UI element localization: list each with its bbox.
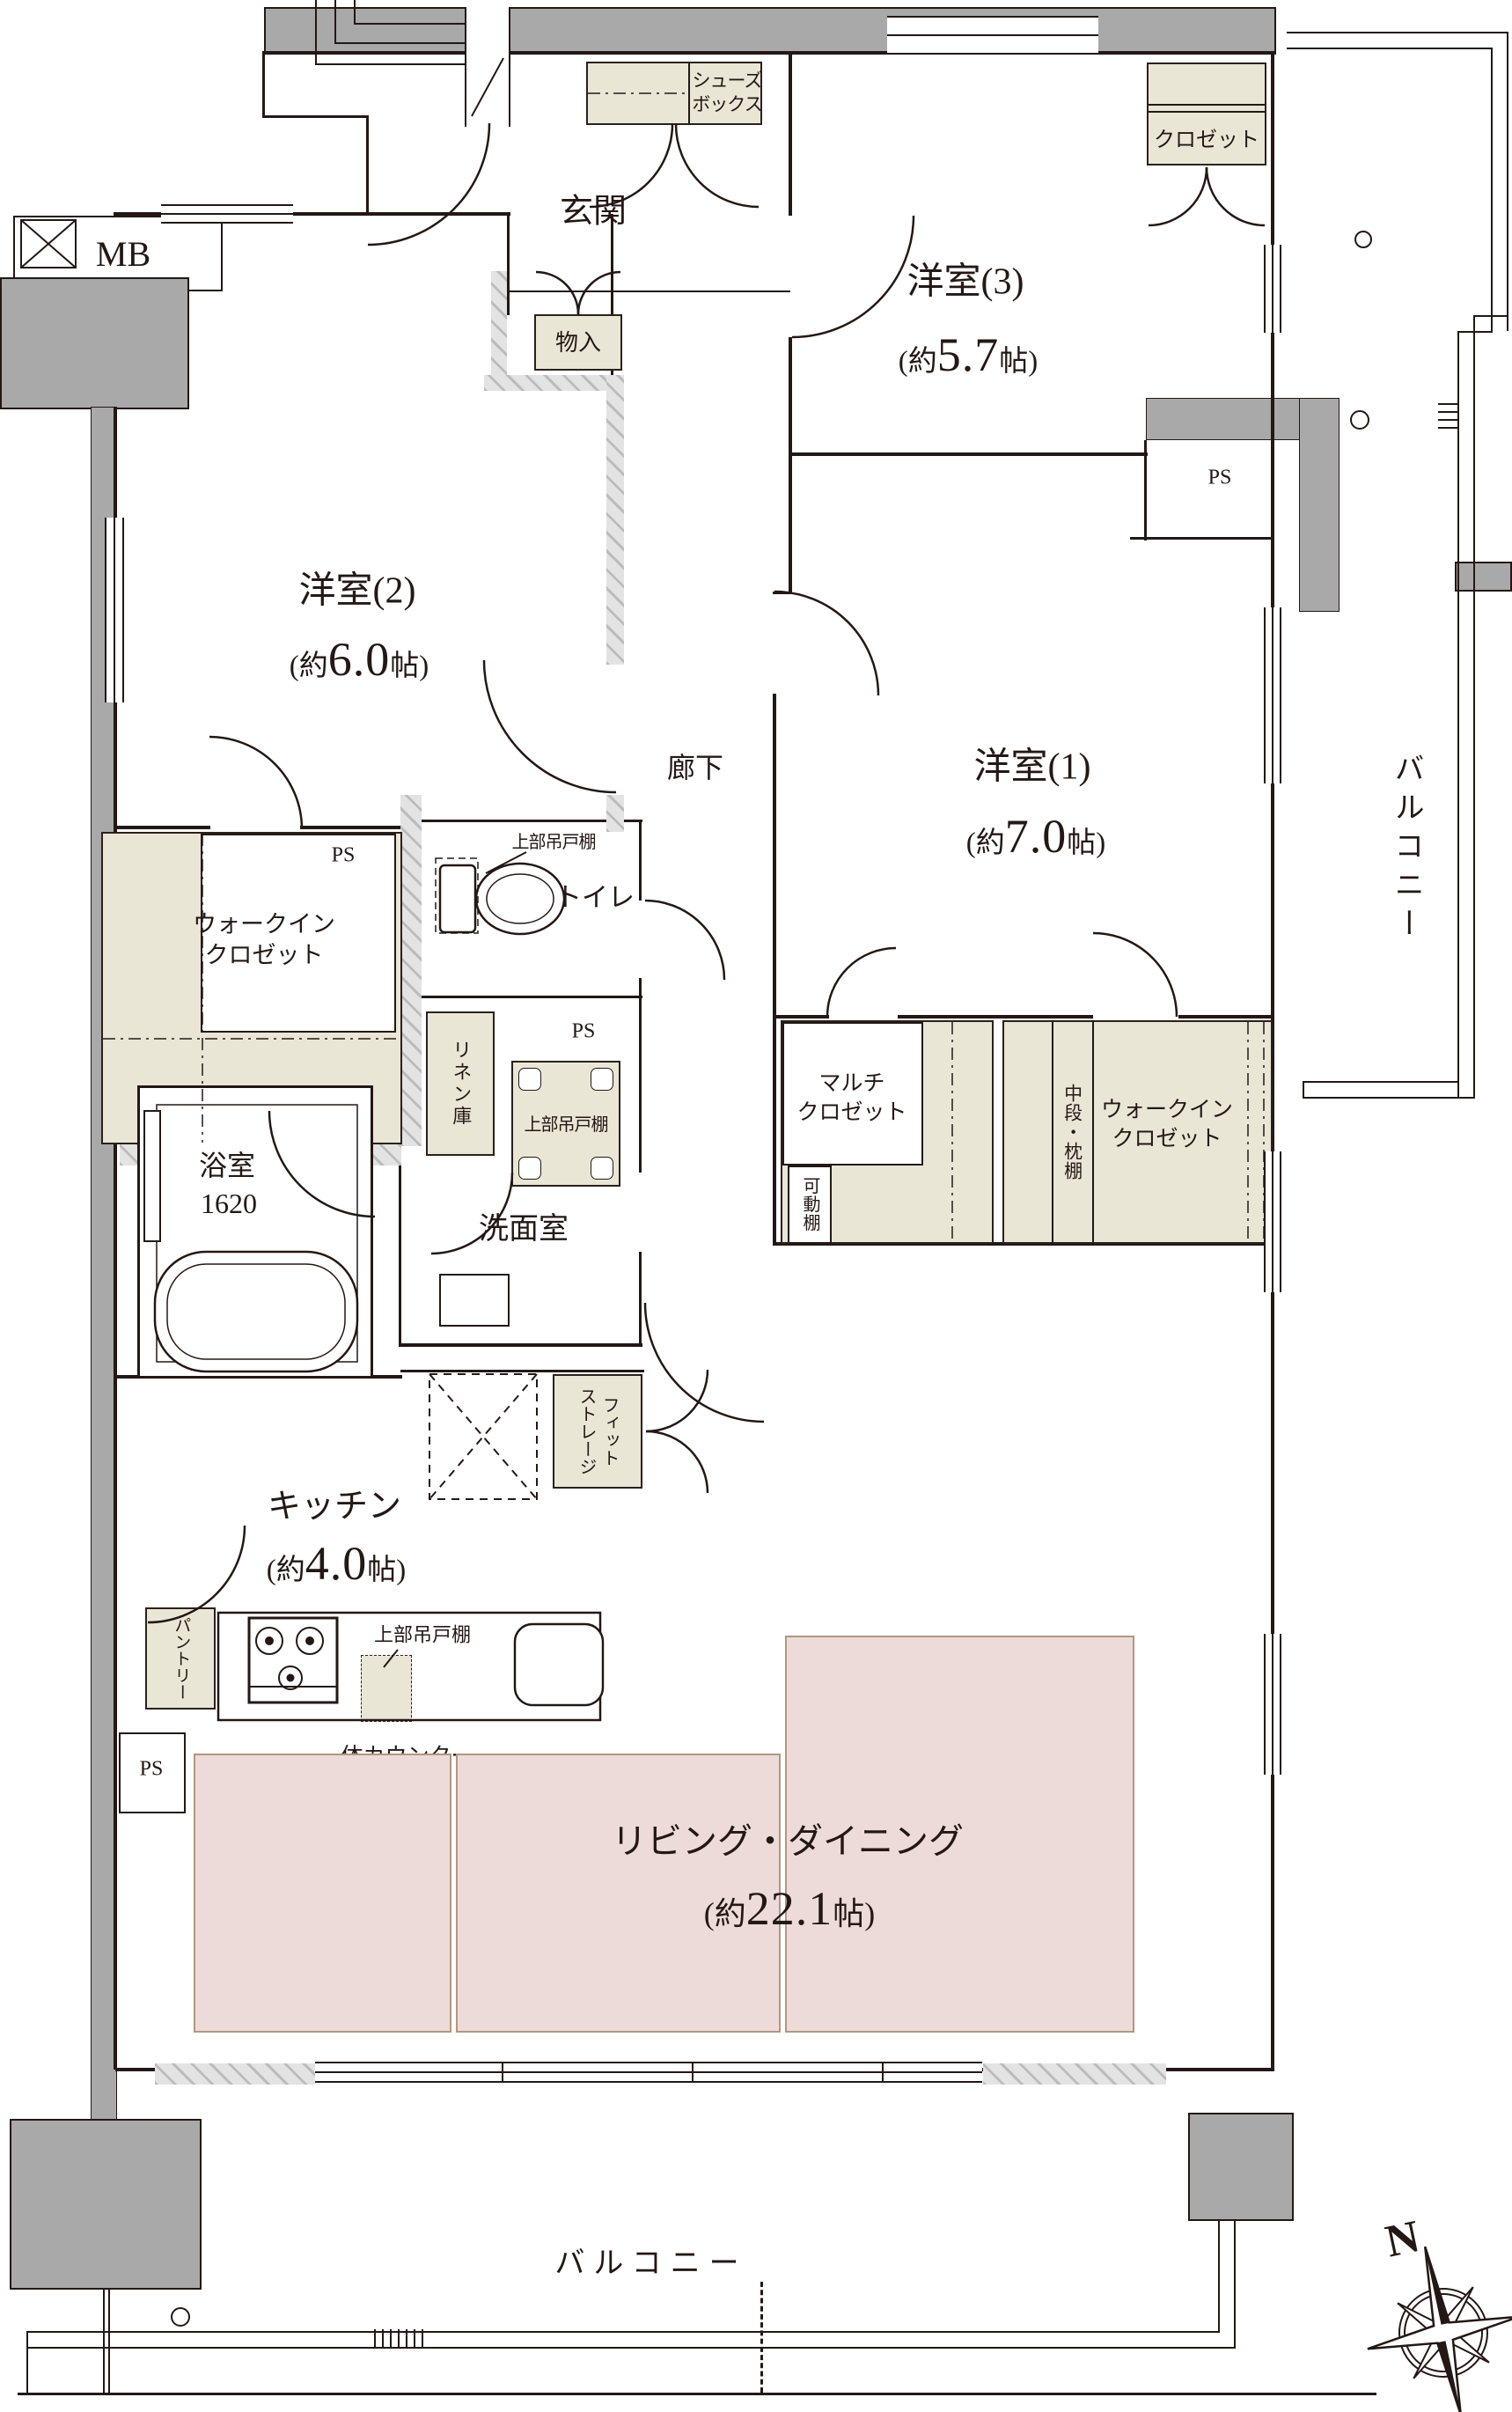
yo2-size-pre: (約 <box>290 651 328 682</box>
balcony-rail-right-v-inner <box>1491 48 1493 331</box>
hatch-wall-corridor-west-2 <box>606 795 624 832</box>
balcony-rail-hatch-right <box>1438 399 1457 429</box>
ps-duct-gray-v <box>1299 398 1340 612</box>
arc-toilet-door <box>645 901 724 980</box>
wall-toilet-bottom <box>421 996 642 998</box>
burner-2 <box>297 1628 323 1654</box>
closet-yo3-shelf-a <box>1149 104 1265 106</box>
hatch-wall-wic-right <box>400 795 422 1146</box>
hatch-wall-window-left <box>155 2063 315 2085</box>
wic-left-label: ウォークイン クロゼット <box>193 909 335 971</box>
wall-corridor-east-1 <box>789 51 792 216</box>
arc-mono-right <box>578 272 620 314</box>
washer-pad-tl <box>518 1068 541 1091</box>
bathroom-outline <box>137 1085 373 1379</box>
shoe-box-divider <box>688 63 690 123</box>
toilet-bowl <box>476 864 564 934</box>
ps-label-corridor: PS <box>572 1018 596 1045</box>
yo2-size-post: 帖) <box>390 651 429 682</box>
balcony-rail-right-cap-a <box>1303 1081 1459 1083</box>
wall-hall-west-v <box>366 117 369 216</box>
window-yo3-top <box>887 16 1098 55</box>
balcony-right-label: バルコニー <box>1386 753 1425 946</box>
arc-kitchen-door <box>645 1303 764 1422</box>
chudan-label: 中段・枕棚 <box>1060 1084 1083 1180</box>
porch-line-3v <box>354 0 356 25</box>
arc-shoebox-right <box>676 124 759 207</box>
balcony-partition-right <box>1455 562 1512 592</box>
ld-label: リビング・ダイニング <box>612 1819 964 1864</box>
wall-ps-niche-bottom <box>1130 537 1273 540</box>
wall-toilet-right-1 <box>639 820 642 901</box>
fit-storage-label: フィット ストレージ <box>575 1387 620 1475</box>
wic-right-label: ウォークイン クロゼット <box>1101 1097 1233 1154</box>
genkan-step-line <box>509 290 790 292</box>
arc-mono-left <box>536 272 578 314</box>
burner-3 <box>279 1666 302 1689</box>
washer-pad-br <box>591 1157 613 1180</box>
closet-yo3-label: クロゼット <box>1154 127 1259 154</box>
porch-line-2v <box>334 0 336 44</box>
wall-jog-yo1 <box>773 592 792 594</box>
wall-wash-right-2 <box>639 1252 642 1347</box>
yo3-size-post: 帖) <box>999 346 1038 378</box>
hatch-wall-mono-h <box>484 375 624 391</box>
genkan-label: 玄関 <box>560 190 627 233</box>
balcony-rail-step-b <box>1457 331 1493 333</box>
wall-closet-top-1 <box>773 1015 829 1018</box>
compass: N <box>1338 2196 1512 2412</box>
window-ld-right-b <box>1264 1634 1281 1775</box>
wall-closet-top-3 <box>1178 1015 1273 1018</box>
porch-line-3h <box>354 23 472 25</box>
yo1-size-pre: (約 <box>966 827 1005 859</box>
wall-topleft-v <box>262 51 265 118</box>
arc-multi-closet-door <box>827 948 896 1017</box>
ld-size: (約22.1帖) <box>704 1881 876 1936</box>
toilet-bowl-inner <box>487 874 554 923</box>
wall-yo3-bottom <box>789 452 1148 456</box>
leader-toilet-shelf <box>486 852 526 873</box>
kitchen-shelf-label: 上部吊戸棚 <box>374 1623 471 1649</box>
wall-corridor-east-2 <box>789 337 792 594</box>
yo2-label: 洋室(2) <box>299 568 416 616</box>
wall-top-band <box>264 7 1276 55</box>
yo3-label: 洋室(3) <box>907 259 1024 307</box>
wall-block-upper-left <box>0 277 189 409</box>
balcony-divider-dashed <box>760 2282 763 2393</box>
wall-wash-left <box>399 1144 401 1347</box>
fridge-space <box>429 1374 537 1499</box>
balcony-rail-right-v2-outer <box>1473 315 1475 1097</box>
arc-closet3-left <box>1149 167 1207 225</box>
window-ld-bottom-tick-3 <box>882 2062 884 2083</box>
yo3-size: (約5.7帖) <box>899 327 1039 382</box>
balcony-rail-right-cap-b <box>1303 1097 1475 1099</box>
wall-fit-top <box>400 1370 644 1372</box>
porch-line-2h <box>334 42 472 44</box>
front-door-recess <box>465 7 510 127</box>
arc-wic-right-door <box>1093 933 1177 1017</box>
toilet-shelf-dashed <box>436 858 478 933</box>
compass-star-main <box>1349 2231 1512 2412</box>
balcony-hook-top <box>1355 232 1371 247</box>
pantry-label: パントリー <box>170 1617 192 1701</box>
toilet-shelf-label: 上部吊戸棚 <box>512 831 596 854</box>
balcony-rail-right-v-outer <box>1507 32 1508 331</box>
stove-box <box>249 1618 337 1702</box>
balcony-bottom-label: バルコニー <box>554 2245 747 2283</box>
meter-box-label: MB <box>96 232 150 277</box>
kitchen-label: キッチン <box>268 1485 401 1528</box>
wall-mono-left <box>507 214 510 315</box>
wall-hall-top-h <box>262 115 369 118</box>
toilet-label: トイレ <box>555 881 635 916</box>
wic-right-sep-b <box>1092 1020 1094 1244</box>
yo1-size-post: 帖) <box>1067 827 1105 859</box>
kitchen-size-post: 帖) <box>367 1555 406 1586</box>
arc-fit-upper <box>646 1370 708 1431</box>
kitchen-sink <box>515 1624 603 1705</box>
balcony-rail-bottom-a <box>26 2331 1218 2333</box>
wall-closet-top-2 <box>898 1015 1093 1018</box>
kitchen-shelf-box <box>361 1655 412 1722</box>
window-ld-bottom-tick-1 <box>502 2062 503 2083</box>
kitchen-size-pre: (約 <box>267 1555 305 1586</box>
porch-line-1h <box>315 63 472 65</box>
arc-wic-door <box>209 737 302 829</box>
toilet-tank <box>440 865 475 932</box>
compass-star-diagonal <box>1368 2257 1512 2408</box>
multi-closet-label: マルチ クロゼット <box>796 1070 906 1128</box>
pillar-line-a <box>103 2290 105 2394</box>
wall-block-lower-left <box>10 2119 202 2290</box>
yo1-size-num: 7.0 <box>1005 810 1068 863</box>
window-ld-right-a <box>1264 1151 1281 1292</box>
corridor-label: 廊下 <box>667 750 723 787</box>
wall-yo1-left <box>773 694 776 1246</box>
arc-yo1-door <box>774 592 878 695</box>
bathroom-label: 浴室 <box>199 1148 255 1185</box>
arc-yo2-door <box>484 660 616 792</box>
balcony-rail-hatch-bottom <box>374 2329 423 2349</box>
window-yo1-right <box>1264 607 1281 783</box>
window-yo3-right <box>1264 245 1281 333</box>
kitchen-size-num: 4.0 <box>305 1537 368 1590</box>
balcony-rail-bottom-b <box>26 2347 1234 2349</box>
kadou-label: 可動棚 <box>798 1177 821 1232</box>
yo2-size: (約6.0帖) <box>290 632 429 687</box>
balcony-rail-bottom-left-v <box>26 2331 28 2394</box>
window-ld-bottom-tick-2 <box>692 2062 694 2083</box>
washer-shelf-label: 上部吊戸棚 <box>525 1114 608 1136</box>
mono-ire-label: 物入 <box>555 328 601 358</box>
window-yo2-left <box>105 518 124 702</box>
bathroom-size-label: 1620 <box>201 1186 257 1223</box>
wall-block-lower-right <box>1188 2113 1294 2221</box>
ps-label-yo1: PS <box>1208 464 1232 491</box>
balcony-rail-bottom-right-vb <box>1234 2221 1236 2349</box>
closet-yo3-shelf-b <box>1149 111 1265 113</box>
shoe-box-label: シューズ ボックス <box>692 70 761 118</box>
ld-mat-left <box>194 1754 451 2033</box>
yo3-size-pre: (約 <box>899 346 937 378</box>
balcony-hook-mid <box>1351 411 1369 429</box>
balcony-rail-right-top-b <box>1287 48 1493 49</box>
balcony-hook-bottom <box>172 2308 189 2326</box>
wall-yo2-bottom-1 <box>114 826 210 829</box>
arc-fit-lower <box>646 1431 708 1493</box>
window-yo2-top <box>161 204 293 224</box>
ld-size-pre: (約 <box>704 1896 746 1931</box>
arc-closet3-right <box>1207 167 1265 225</box>
hatch-wall-mono-v <box>491 271 507 379</box>
washroom-label: 洗面室 <box>479 1210 569 1249</box>
balcony-rail-right-cap-v <box>1303 1081 1304 1099</box>
compass-north-label: N <box>1381 2211 1424 2268</box>
washer-pad-tr <box>591 1068 613 1091</box>
balcony-rail-step-a <box>1473 315 1508 317</box>
wash-vanity <box>440 1275 509 1326</box>
balcony-rail-right-v2-inner <box>1457 331 1459 1097</box>
wall-wash-right-1 <box>639 999 642 1173</box>
floor-plan: MB <box>0 0 1512 2412</box>
yo1-size: (約7.0帖) <box>966 809 1106 864</box>
yo3-size-num: 5.7 <box>937 328 1000 381</box>
ld-size-num: 22.1 <box>746 1882 833 1935</box>
wic-right-sep-a <box>1052 1020 1053 1244</box>
balcony-outer-edge-bottom <box>18 2393 1376 2395</box>
ld-size-post: 帖) <box>833 1896 875 1931</box>
yo2-size-num: 6.0 <box>328 633 391 686</box>
wall-wash-bottom <box>399 1343 642 1347</box>
arc-yo3-door <box>792 216 914 337</box>
wall-outer-top <box>264 51 1276 55</box>
hatch-wall-window-right <box>983 2063 1166 2085</box>
burner-1 <box>256 1628 283 1654</box>
hatch-wall-corridor-west-1 <box>606 375 624 665</box>
porch-line-1v <box>315 0 317 65</box>
wall-ps-niche-left <box>1144 440 1147 540</box>
kitchen-size: (約4.0帖) <box>267 1536 407 1591</box>
ps-kitchen-box <box>119 1732 186 1813</box>
yo1-label: 洋室(1) <box>974 744 1091 792</box>
balcony-rail-right-top-a <box>1287 32 1508 33</box>
linen-label: リネン庫 <box>448 1040 473 1128</box>
ps-label-wic: PS <box>332 842 356 869</box>
wall-yo2-bottom-2 <box>300 826 404 829</box>
arc-hall-door <box>368 123 489 245</box>
balcony-rail-bottom-right-va <box>1218 2221 1220 2333</box>
washer-pad-bl <box>518 1157 541 1180</box>
pillar-line-b <box>108 2290 110 2394</box>
